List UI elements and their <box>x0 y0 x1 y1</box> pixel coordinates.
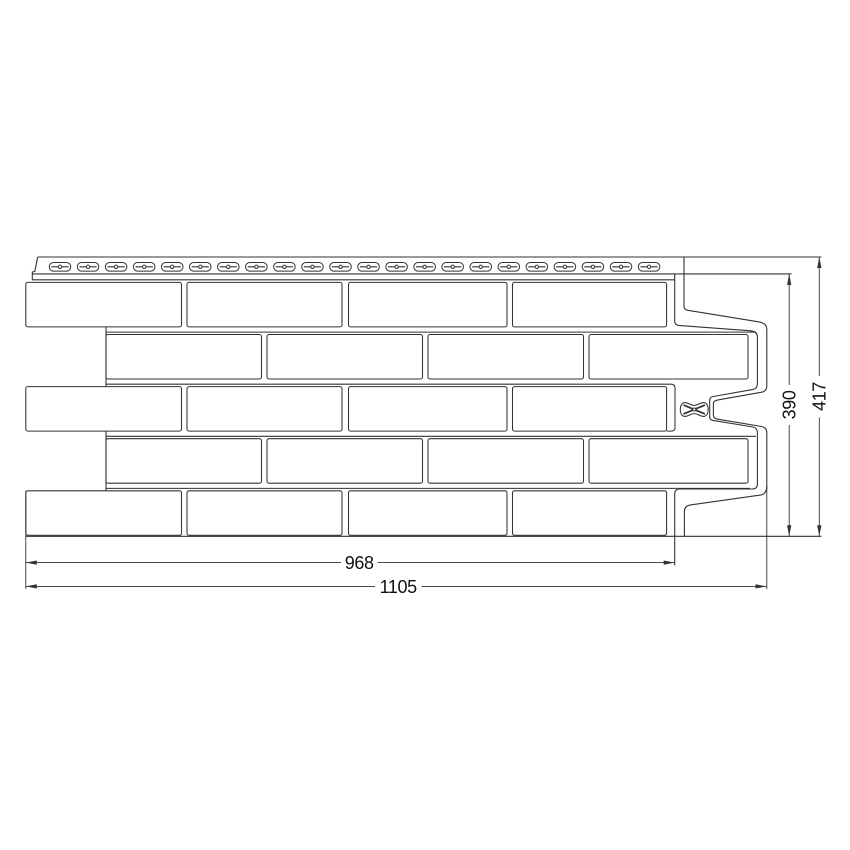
svg-text:417: 417 <box>810 382 830 411</box>
svg-text:390: 390 <box>780 390 800 419</box>
svg-text:968: 968 <box>345 553 374 573</box>
svg-text:1105: 1105 <box>380 577 417 597</box>
